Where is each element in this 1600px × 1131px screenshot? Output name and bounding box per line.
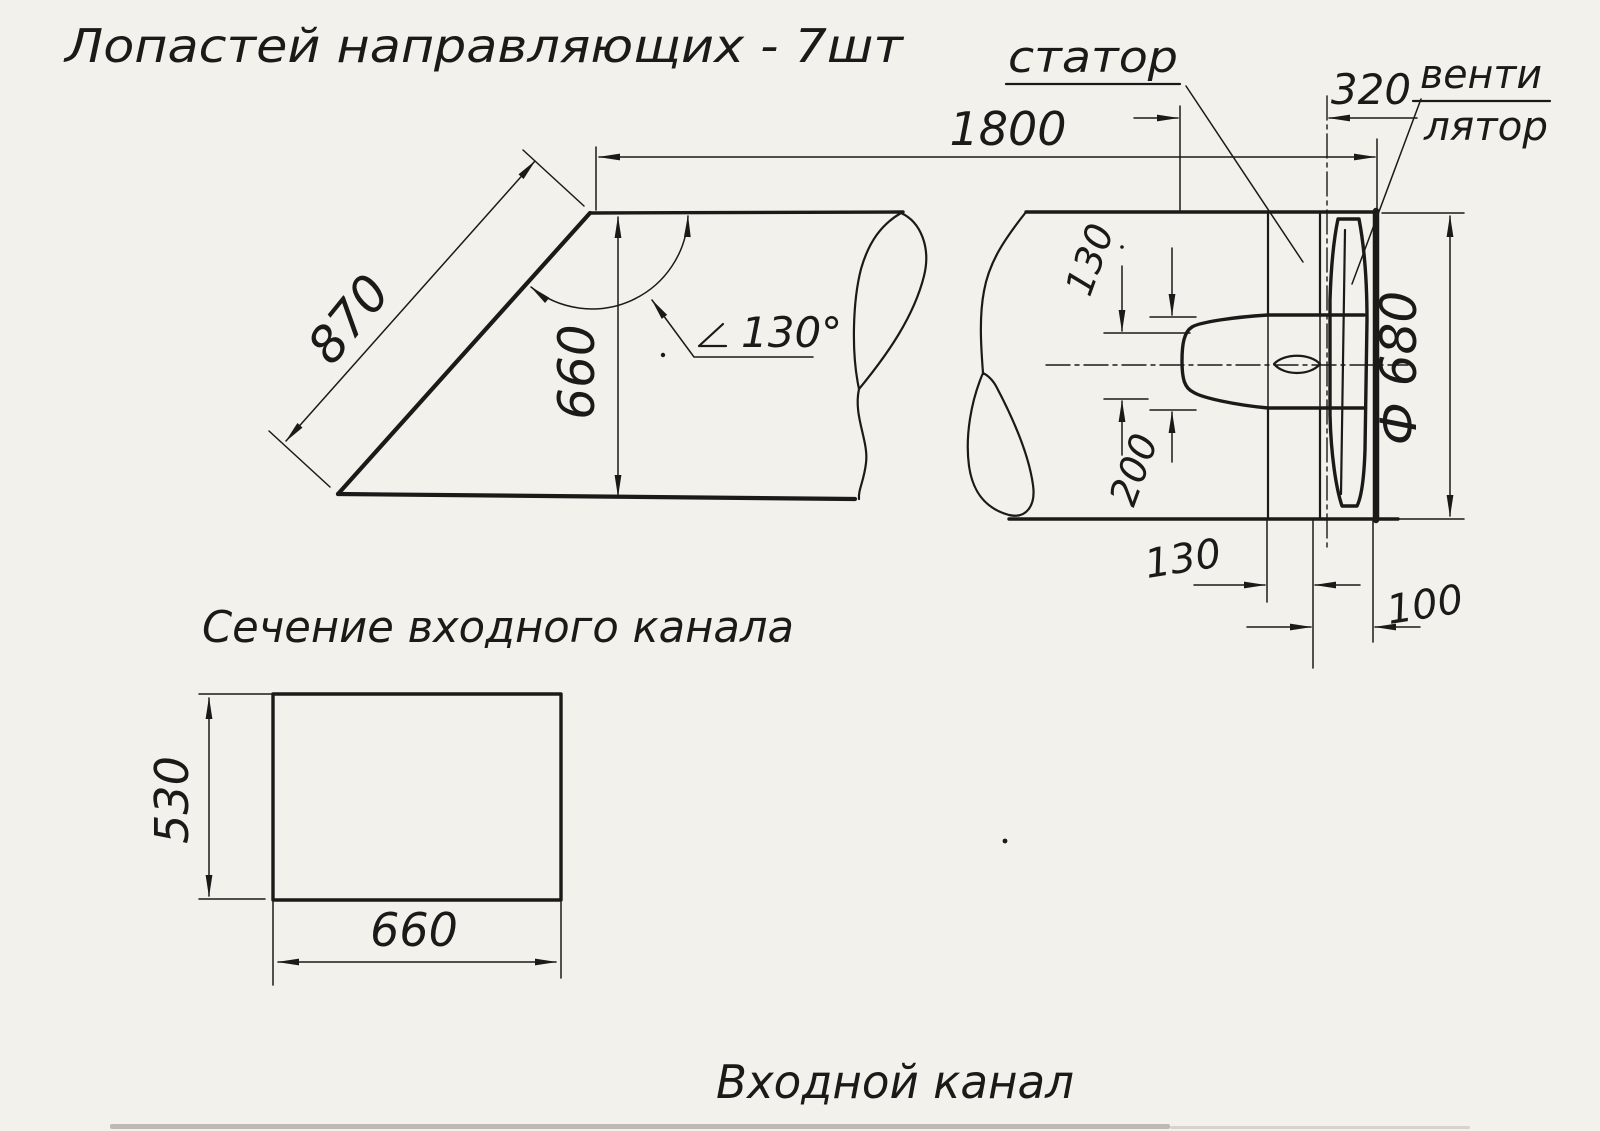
dim-660-value: 660 [548,324,606,419]
dim-1800-value: 1800 [949,102,1066,156]
stator-assembly [1182,214,1364,518]
section-rectangle [273,694,561,900]
dim-bottom-130-value: 130 [1142,530,1225,587]
stator-leader [1186,86,1303,262]
fan-blade [1330,219,1367,506]
dim-320: 320 [1134,65,1417,210]
scanned-drawing-page: Лопастей направляющих - 7шт Сечение вход… [0,0,1600,1131]
fan-label-line2: лятор [1423,104,1548,150]
angle-symbol-icon [699,324,726,346]
dim-bottom-100: 100 [1247,521,1466,642]
dim-hub-200-value: 200 [1101,428,1167,511]
bottom-caption: Входной канал [716,1055,1074,1109]
dim-660-width-value: 660 [370,903,458,957]
dim-870: 870 [269,150,584,487]
break-line-wave [981,212,1026,373]
ink-speck [1120,245,1124,249]
blade-inner-contour [1341,230,1345,494]
break-line-wave [858,389,867,499]
dim-530-value: 530 [145,756,199,844]
dim-hub-200: 200 [1101,248,1196,511]
inlet-top-wall [590,212,903,213]
dim-bottom-100-value: 100 [1384,576,1467,633]
dim-1800: 1800 [596,102,1377,210]
break-line-teardrop [968,373,1034,516]
stator-label-text: статор [1008,32,1178,83]
dim-660-height: 660 [548,217,618,496]
scan-artifacts [110,245,1470,1129]
dim-diameter-value: Ф 680 [1370,291,1428,445]
technical-sketch-svg: Лопастей направляющих - 7шт Сечение вход… [0,0,1600,1131]
scan-edge-shadow-right [1170,1126,1470,1129]
dim-320-value: 320 [1331,65,1411,114]
hub-nose [1182,315,1268,408]
dim-870-value: 870 [296,264,401,375]
dim-angle-value: 130° [741,308,842,357]
angle-arc [531,216,688,309]
ink-speck [661,353,665,357]
dim-hub-130-value: 130 [1057,218,1123,301]
page-title: Лопастей направляющих - 7шт [63,19,905,73]
section-view: 530 660 [145,694,561,985]
section-caption: Сечение входного канала [202,602,794,653]
blade-outline [1330,219,1367,506]
dim-hub-130: 130 [1057,218,1190,455]
fan-leader [1352,99,1421,284]
break-line-leaf [854,213,926,389]
scan-edge-shadow [110,1124,1170,1129]
dim-fan-diameter: Ф 680 [1370,213,1464,519]
ink-speck [1003,839,1008,844]
fan-label-line1: венти [1420,52,1542,98]
dimension-line [286,161,535,441]
extension-line [523,150,584,206]
extension-line [269,431,330,487]
inlet-bottom-wall [338,494,855,499]
